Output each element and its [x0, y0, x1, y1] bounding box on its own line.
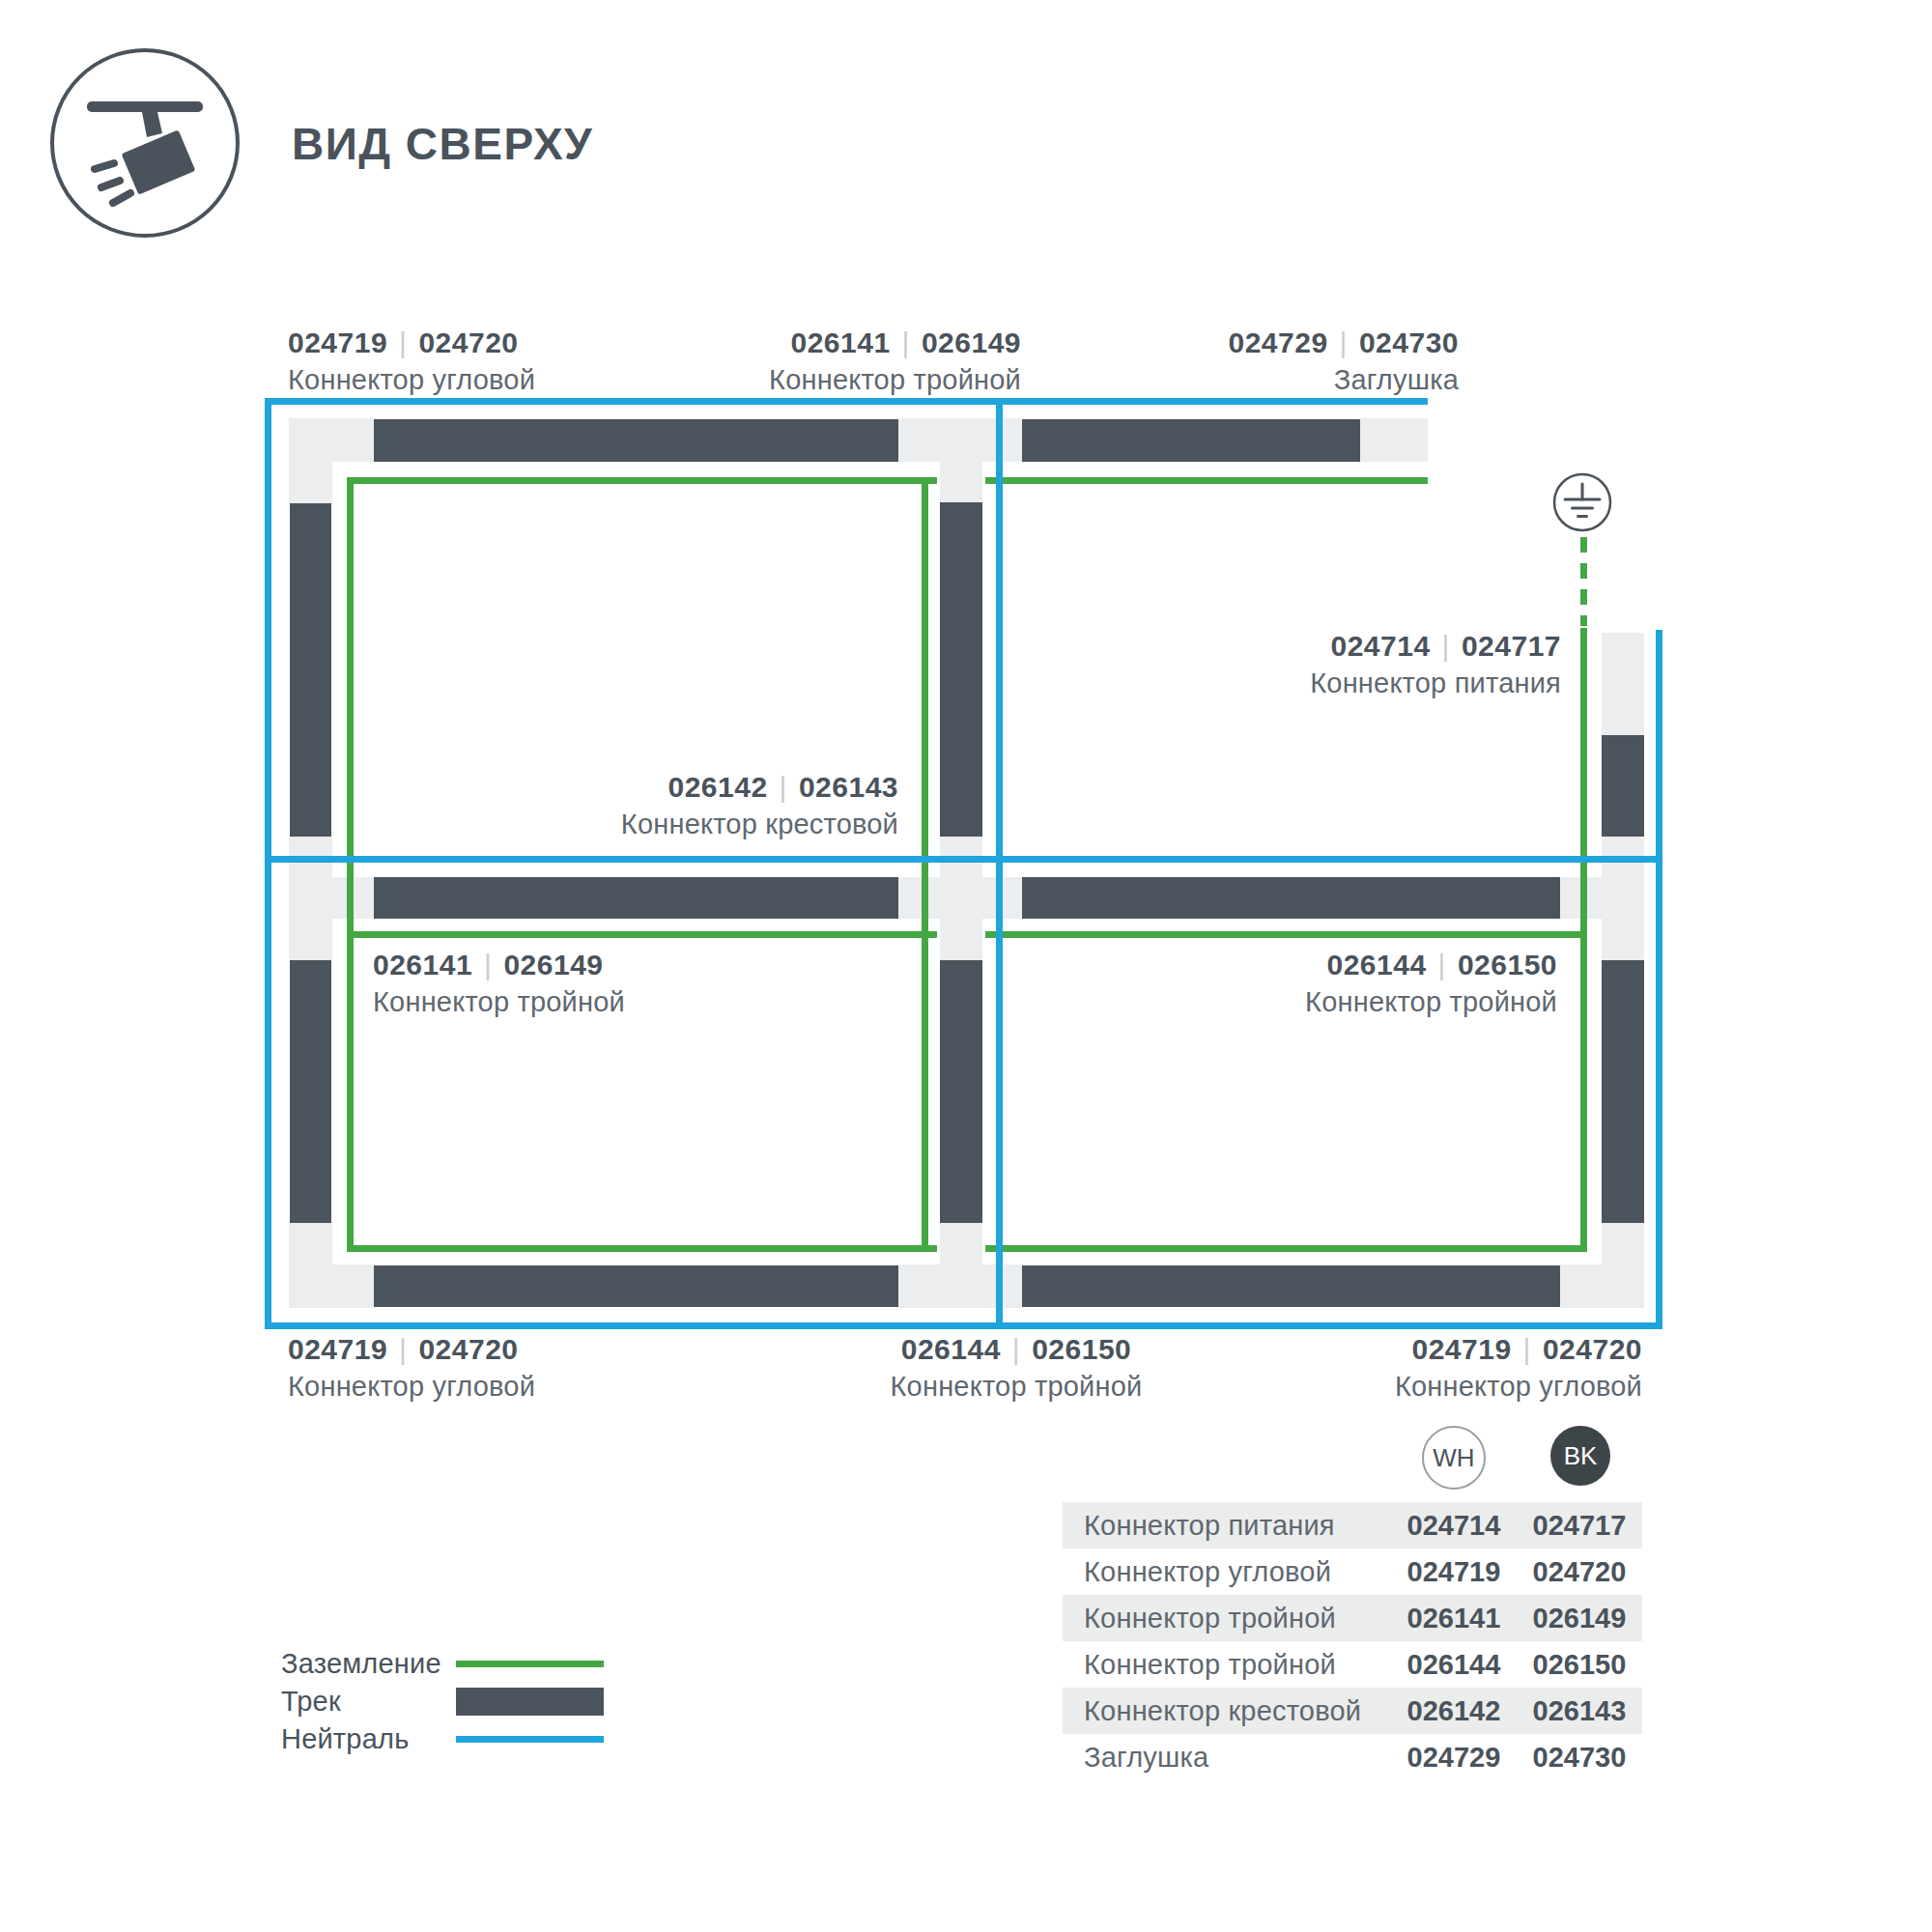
triple-connector: [898, 1264, 1022, 1308]
ground-wire-dashed: [1580, 537, 1587, 626]
neutral-wire: [265, 398, 271, 1329]
ground-wire: [985, 1245, 1586, 1252]
ground-wire: [350, 931, 937, 938]
ground-wire: [347, 477, 354, 1252]
track-segment: [290, 502, 331, 838]
neutral-wire: [996, 398, 1003, 1329]
table-row: Коннектор питания024714024717: [1063, 1502, 1642, 1548]
track-segment: [373, 1265, 898, 1307]
triple-connector: [898, 418, 1022, 462]
label-triple-connector-top: 026141|026149 Коннектор тройной: [769, 327, 1021, 395]
ground-wire: [985, 477, 1428, 484]
grounding-symbol-icon: [1551, 471, 1613, 533]
column-badge-black: BK: [1550, 1426, 1610, 1486]
ground-wire: [985, 931, 1586, 938]
ground-wire: [350, 477, 937, 484]
track-segment: [290, 959, 331, 1224]
track-segment: [1602, 734, 1644, 838]
label-corner-connector-bottom-right: 024719|024720 Коннектор угловой: [1395, 1333, 1642, 1402]
ground-wire: [1580, 628, 1587, 1252]
label-power-connector: 024714|024717 Коннектор питания: [1310, 630, 1561, 698]
triple-connector: [940, 1223, 982, 1265]
legend-item-ground: Заземление: [281, 1645, 604, 1683]
track-segment: [373, 877, 898, 919]
table-row: Коннектор тройной026141026149: [1063, 1595, 1642, 1641]
end-cap: [1360, 418, 1428, 462]
track-bar-swatch: [456, 1688, 604, 1716]
ground-wire: [350, 1245, 937, 1252]
track-segment: [1022, 877, 1561, 919]
neutral-wire: [265, 856, 1662, 863]
corner-connector: [289, 418, 332, 503]
ground-wire: [922, 477, 928, 1252]
neutral-wire: [1656, 630, 1662, 1329]
column-badge-white: WH: [1422, 1426, 1486, 1490]
track-segment: [1022, 419, 1360, 462]
table-row: Заглушка024729024730: [1063, 1734, 1642, 1780]
neutral-wire: [265, 1322, 1662, 1329]
ground-line-swatch: [456, 1661, 604, 1667]
neutral-line-swatch: [456, 1736, 604, 1743]
track-segment: [373, 419, 898, 462]
track-segment: [1022, 1265, 1561, 1307]
corner-connector: [1602, 1223, 1644, 1308]
label-triple-connector-middle-right: 026144|026150 Коннектор тройной: [1305, 949, 1557, 1017]
legend-item-neutral: Нейтраль: [281, 1720, 604, 1758]
table-row: Коннектор крестовой026142026143: [1063, 1688, 1642, 1734]
label-cross-connector: 026142|026143 Коннектор крестовой: [621, 771, 898, 839]
legend-item-track: Трек: [281, 1683, 604, 1720]
table-row: Коннектор угловой024719024720: [1063, 1548, 1642, 1595]
label-corner-connector-bottom-left: 024719|024720 Коннектор угловой: [288, 1333, 535, 1402]
label-triple-connector-bottom: 026144|026150 Коннектор тройной: [871, 1333, 1161, 1402]
neutral-wire: [265, 398, 1428, 405]
label-corner-connector-top-left: 024719|024720 Коннектор угловой: [288, 327, 535, 395]
corner-connector: [289, 1264, 374, 1308]
power-connector: [1602, 633, 1644, 735]
page-title: ВИД СВЕРХУ: [292, 118, 593, 170]
track-segment: [1602, 959, 1644, 1224]
track-segment: [940, 959, 982, 1224]
label-end-cap: 024729|024730 Заглушка: [1228, 327, 1459, 395]
triple-connector: [940, 461, 982, 502]
label-triple-connector-middle-left: 026141|026149 Коннектор тройной: [373, 949, 625, 1017]
parts-table: Коннектор питания024714024717 Коннектор …: [1063, 1502, 1642, 1780]
track-spotlight-icon: [48, 46, 241, 240]
legend: Заземление Трек Нейтраль: [281, 1645, 604, 1758]
track-segment: [940, 502, 982, 838]
table-row: Коннектор тройной026144026150: [1063, 1641, 1642, 1688]
page: ВИД СВЕРХУ: [0, 0, 1932, 1932]
